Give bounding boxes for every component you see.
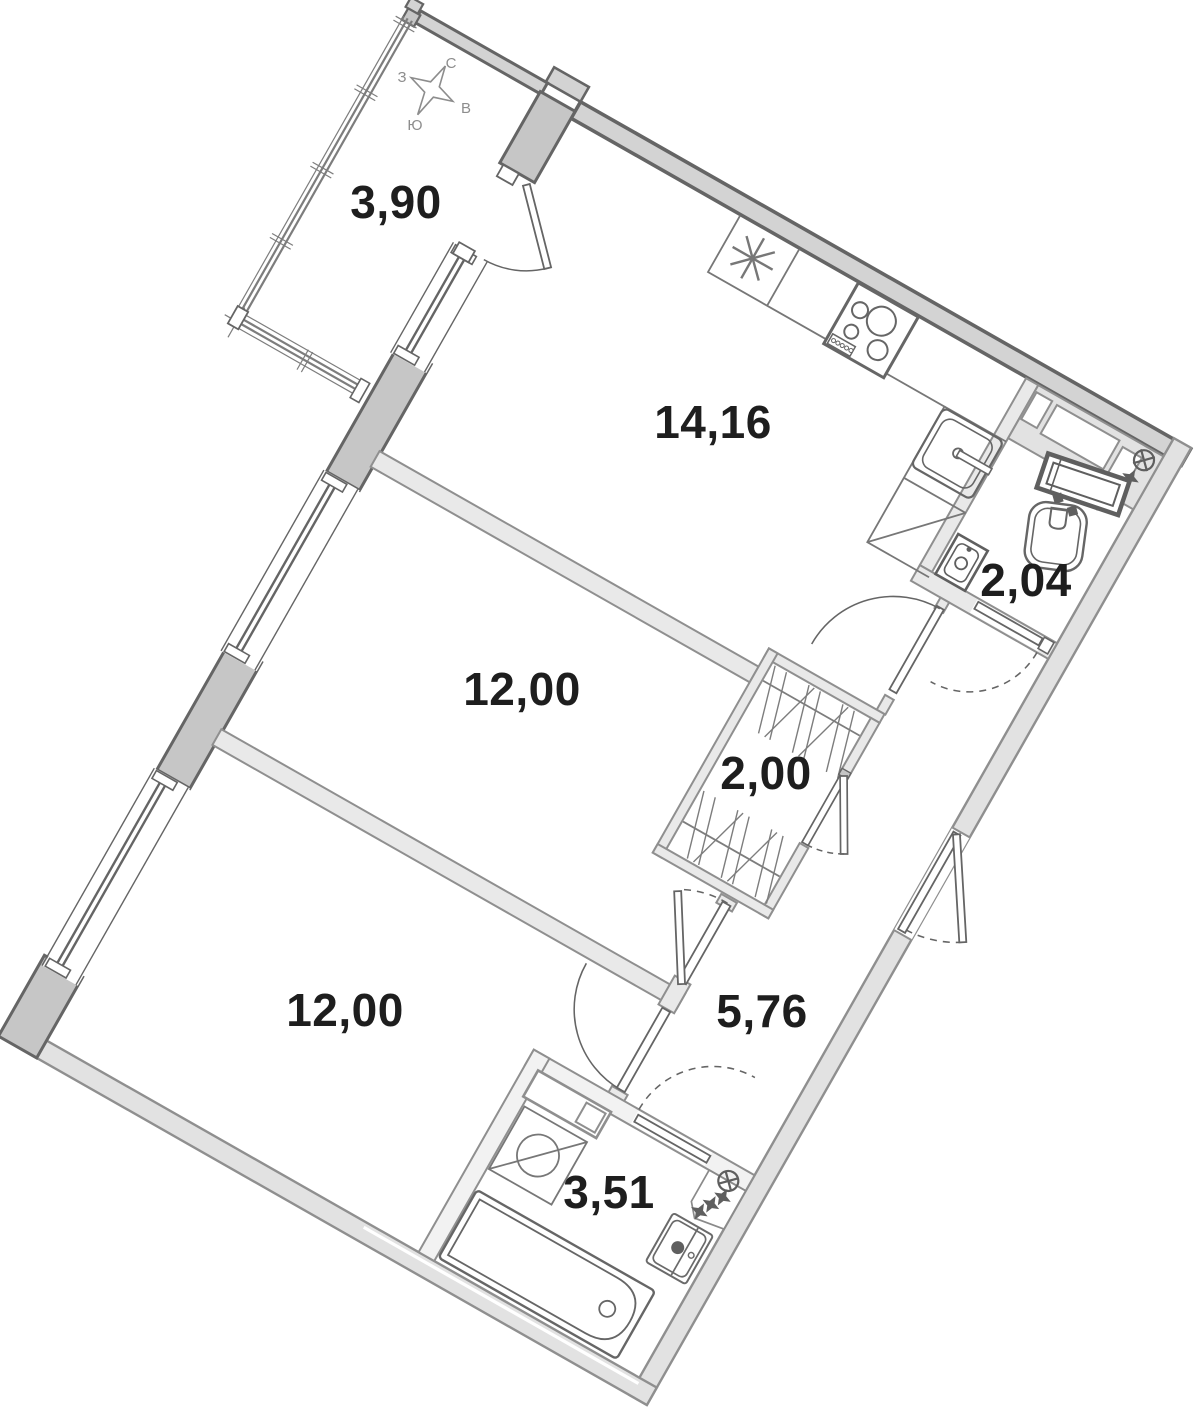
- svg-text:С: С: [446, 55, 457, 72]
- svg-text:5,76: 5,76: [716, 985, 808, 1037]
- svg-text:14,16: 14,16: [654, 396, 772, 448]
- svg-text:12,00: 12,00: [463, 663, 581, 715]
- svg-text:Ю: Ю: [407, 117, 422, 134]
- svg-text:В: В: [461, 100, 471, 117]
- svg-text:3,90: 3,90: [350, 176, 442, 228]
- svg-text:12,00: 12,00: [286, 984, 404, 1036]
- svg-text:З: З: [397, 69, 406, 86]
- svg-text:2,04: 2,04: [980, 554, 1072, 606]
- svg-text:3,51: 3,51: [563, 1166, 655, 1218]
- svg-text:2,00: 2,00: [720, 747, 812, 799]
